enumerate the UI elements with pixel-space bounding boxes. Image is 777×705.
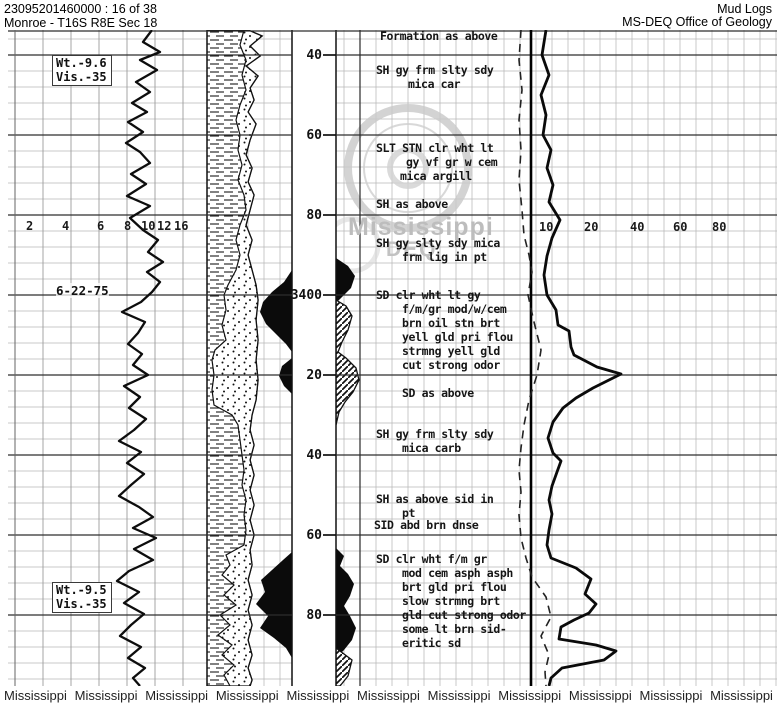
description-line: frm lig in pt bbox=[402, 251, 487, 264]
description-line: mica car bbox=[408, 78, 460, 91]
mud-check-box-top: Wt.-9.6 Vis.-35 bbox=[52, 55, 112, 86]
agency-title: MS-DEQ Office of Geology bbox=[622, 15, 772, 29]
description-line: gld cut strong odor bbox=[402, 609, 526, 622]
description-line: SH gy frm slty sdy bbox=[376, 64, 493, 77]
footer-watermark-item: Mississippi bbox=[357, 688, 420, 703]
log-plot bbox=[0, 30, 777, 686]
left-scale-4: 4 bbox=[62, 219, 69, 233]
description-line: f/m/gr mod/w/cem bbox=[402, 303, 506, 316]
mud-check-box-bottom: Wt.-9.5 Vis.-35 bbox=[52, 582, 112, 613]
footer-watermark-item: Mississippi bbox=[428, 688, 491, 703]
depth-label-60b: 60 bbox=[282, 528, 322, 543]
description-line: SD clr wht lt gy bbox=[376, 289, 480, 302]
right-scale-10: 10 bbox=[539, 220, 553, 234]
left-scale-16: 16 bbox=[174, 219, 188, 233]
depth-label-3400: 3400 bbox=[282, 288, 322, 303]
depth-label-20: 20 bbox=[282, 368, 322, 383]
depth-label-80a: 80 bbox=[282, 208, 322, 223]
description-line: SLT STN clr wht lt bbox=[376, 142, 493, 155]
right-scale-80: 80 bbox=[712, 220, 726, 234]
mud-weight-top: Wt.-9.6 bbox=[56, 57, 107, 71]
description-line: strmng yell gld bbox=[402, 345, 500, 358]
footer-watermark-item: Mississippi bbox=[710, 688, 773, 703]
right-scale-20: 20 bbox=[584, 220, 598, 234]
well-location: Monroe - T16S R8E Sec 18 bbox=[4, 16, 157, 30]
right-scale-60: 60 bbox=[673, 220, 687, 234]
left-scale-12: 12 bbox=[157, 219, 171, 233]
document-number: 23095201460000 : 16 of 38 bbox=[4, 2, 157, 16]
depth-label-40b: 40 bbox=[282, 448, 322, 463]
description-line: SH as above sid in bbox=[376, 493, 493, 506]
description-line: mod cem asph asph bbox=[402, 567, 513, 580]
date-annotation: 6-22-75 bbox=[56, 283, 109, 298]
description-line: SID abd brn dnse bbox=[374, 519, 478, 532]
description-line: SD as above bbox=[402, 387, 474, 400]
description-line: brn oil stn brt bbox=[402, 317, 500, 330]
description-line: SH gy frm slty sdy bbox=[376, 428, 493, 441]
description-line: brt gld pri flou bbox=[402, 581, 506, 594]
mud-weight-bottom: Wt.-9.5 bbox=[56, 584, 107, 598]
footer-watermark-item: Mississippi bbox=[286, 688, 349, 703]
depth-label-40a: 40 bbox=[282, 48, 322, 63]
description-line: cut strong odor bbox=[402, 359, 500, 372]
left-scale-8: 8 bbox=[124, 219, 131, 233]
mud-log-page: 23095201460000 : 16 of 38 Monroe - T16S … bbox=[0, 0, 777, 705]
log-type-title: Mud Logs bbox=[717, 2, 772, 16]
depth-label-60a: 60 bbox=[282, 128, 322, 143]
description-line: mica carb bbox=[402, 442, 461, 455]
left-scale-6: 6 bbox=[97, 219, 104, 233]
description-line: mica argill bbox=[400, 170, 472, 183]
right-scale-40: 40 bbox=[630, 220, 644, 234]
left-scale-10: 10 bbox=[141, 219, 155, 233]
mud-viscosity-bottom: Vis.-35 bbox=[56, 598, 107, 612]
depth-label-80b: 80 bbox=[282, 608, 322, 623]
left-scale-2: 2 bbox=[26, 219, 33, 233]
footer-watermark-row: Mississippi Mississippi Mississippi Miss… bbox=[0, 686, 777, 705]
description-line: Formation as above bbox=[380, 30, 497, 43]
footer-watermark-item: Mississippi bbox=[4, 688, 67, 703]
description-line: eritic sd bbox=[402, 637, 461, 650]
footer-watermark-item: Mississippi bbox=[639, 688, 702, 703]
description-line: SD clr wht f/m gr bbox=[376, 553, 487, 566]
description-line: gy vf gr w cem bbox=[406, 156, 497, 169]
description-line: SH gy slty sdy mica bbox=[376, 237, 500, 250]
description-line: some lt brn sid- bbox=[402, 623, 506, 636]
description-line: SH as above bbox=[376, 198, 448, 211]
footer-watermark-item: Mississippi bbox=[75, 688, 138, 703]
footer-watermark-item: Mississippi bbox=[145, 688, 208, 703]
description-line: slow strmng brt bbox=[402, 595, 500, 608]
footer-watermark-item: Mississippi bbox=[569, 688, 632, 703]
footer-watermark-item: Mississippi bbox=[216, 688, 279, 703]
mud-viscosity-top: Vis.-35 bbox=[56, 71, 107, 85]
description-line: yell gld pri flou bbox=[402, 331, 513, 344]
footer-watermark-item: Mississippi bbox=[498, 688, 561, 703]
